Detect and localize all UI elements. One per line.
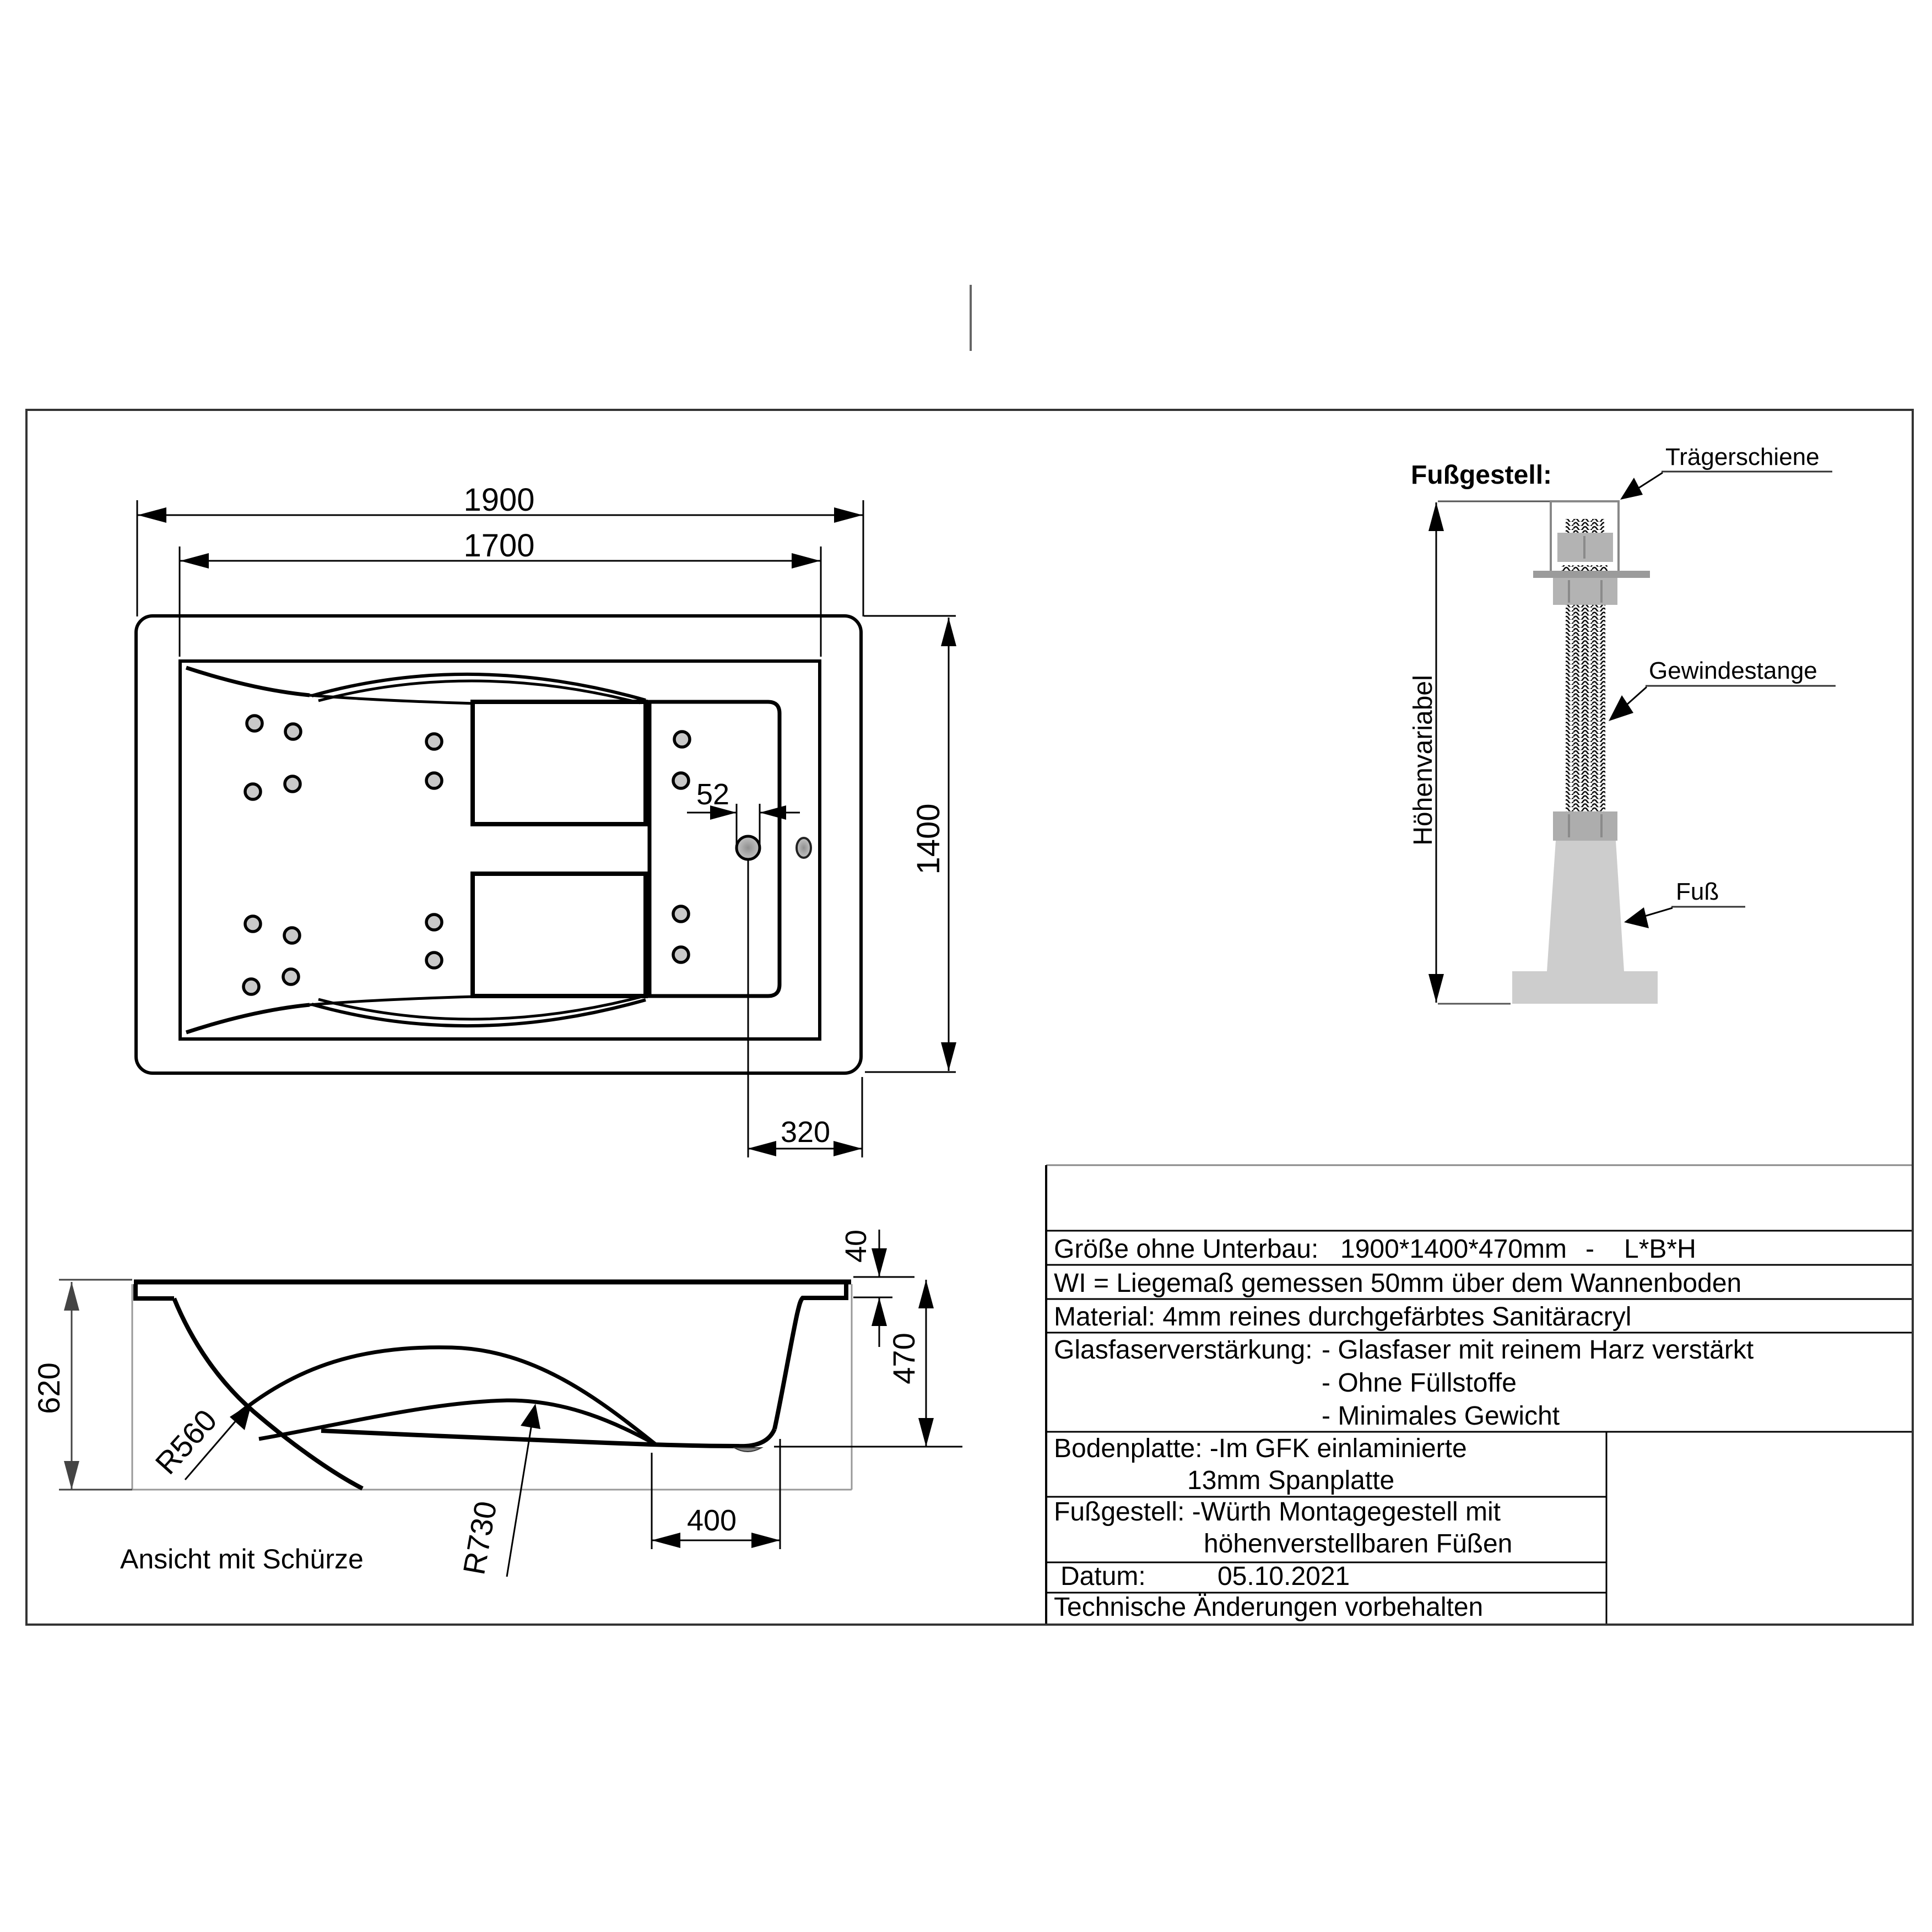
svg-text:400: 400 (687, 1504, 737, 1537)
svg-text:Fußgestell:: Fußgestell: (1411, 461, 1552, 490)
svg-text:13mm Spanplatte: 13mm Spanplatte (1187, 1466, 1394, 1495)
svg-text:Technische Änderungen vorbehal: Technische Änderungen vorbehalten (1054, 1593, 1483, 1622)
svg-text:- Glasfaser mit reinem Harz ve: - Glasfaser mit reinem Harz verstärkt (1322, 1335, 1754, 1365)
svg-text:- Minimales Gewicht: - Minimales Gewicht (1322, 1401, 1560, 1431)
svg-text:höhenverstellbaren Füßen: höhenverstellbaren Füßen (1204, 1529, 1512, 1558)
svg-text:52: 52 (696, 778, 729, 811)
svg-text:1900: 1900 (463, 482, 534, 518)
svg-text:Fuß: Fuß (1676, 878, 1719, 905)
svg-text:Datum:: Datum: (1060, 1562, 1146, 1591)
svg-text:Material: 4mm reines durchgefä: Material: 4mm reines durchgefärbtes Sani… (1054, 1302, 1631, 1332)
svg-text:05.10.2021: 05.10.2021 (1217, 1562, 1350, 1591)
svg-text:Fußgestell: -Würth Montagegest: Fußgestell: -Würth Montagegestell mit (1054, 1497, 1501, 1527)
svg-text:-: - (1585, 1235, 1594, 1264)
svg-text:Größe ohne Unterbau:: Größe ohne Unterbau: (1054, 1235, 1318, 1264)
svg-text:Höhenvariabel: Höhenvariabel (1409, 675, 1438, 846)
svg-text:1700: 1700 (463, 528, 534, 564)
svg-text:470: 470 (886, 1333, 921, 1384)
svg-text:40: 40 (840, 1230, 873, 1263)
svg-text:Trägerschiene: Trägerschiene (1665, 443, 1820, 470)
svg-text:Glasfaserverstärkung:: Glasfaserverstärkung: (1054, 1335, 1313, 1365)
svg-text:- Ohne Füllstoffe: - Ohne Füllstoffe (1322, 1368, 1517, 1398)
svg-text:620: 620 (31, 1362, 66, 1414)
svg-text:L*B*H: L*B*H (1624, 1235, 1696, 1264)
svg-text:Ansicht mit Schürze: Ansicht mit Schürze (120, 1544, 364, 1574)
svg-text:320: 320 (781, 1116, 830, 1149)
svg-text:1400: 1400 (911, 803, 946, 874)
svg-text:WI = Liegemaß gemessen 50mm üb: WI = Liegemaß gemessen 50mm über dem Wan… (1054, 1269, 1741, 1298)
svg-text:Bodenplatte: -Im GFK einlamini: Bodenplatte: -Im GFK einlaminierte (1054, 1434, 1467, 1463)
svg-text:1900*1400*470mm: 1900*1400*470mm (1340, 1235, 1567, 1264)
svg-text:Gewindestange: Gewindestange (1649, 657, 1817, 684)
